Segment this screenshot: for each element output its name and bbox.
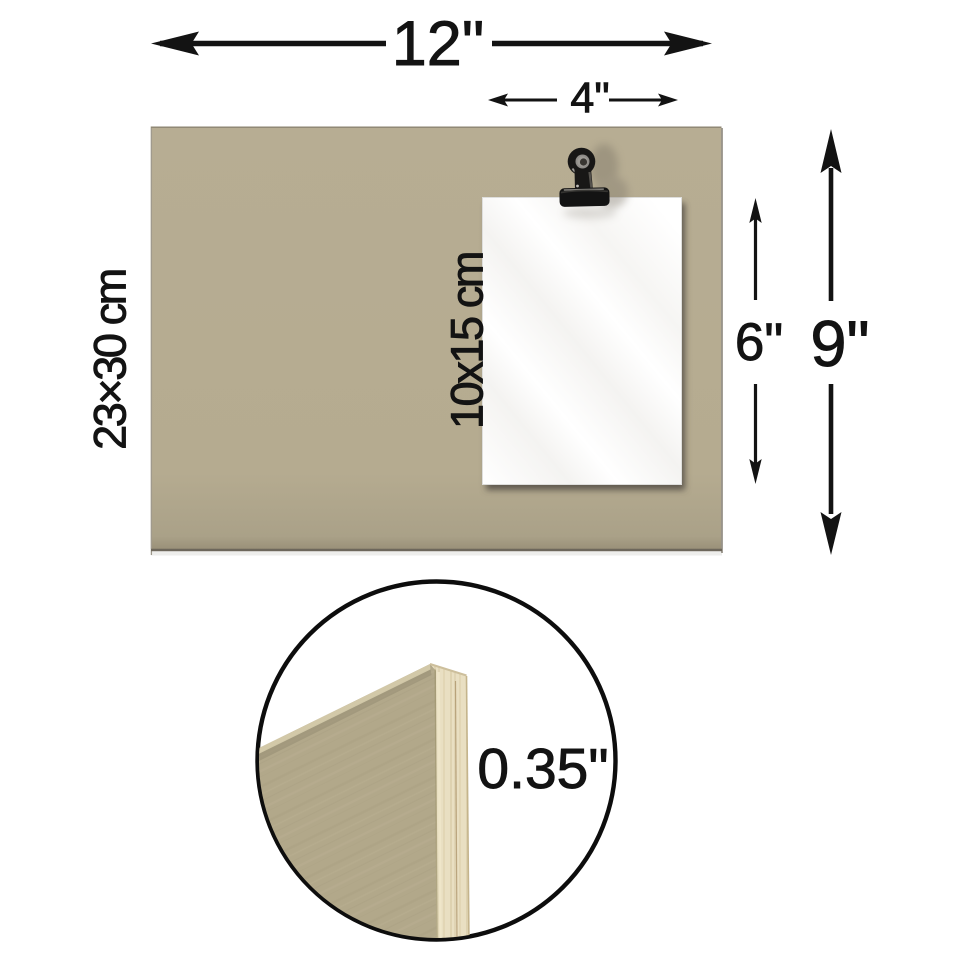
svg-text:12": 12" <box>392 9 484 79</box>
svg-text:10x15 cm: 10x15 cm <box>442 253 493 429</box>
svg-text:9": 9" <box>810 307 869 380</box>
svg-text:0.35": 0.35" <box>477 737 608 801</box>
svg-text:6": 6" <box>735 313 783 372</box>
svg-text:4": 4" <box>570 74 609 122</box>
svg-text:23×30 cm: 23×30 cm <box>85 270 136 450</box>
